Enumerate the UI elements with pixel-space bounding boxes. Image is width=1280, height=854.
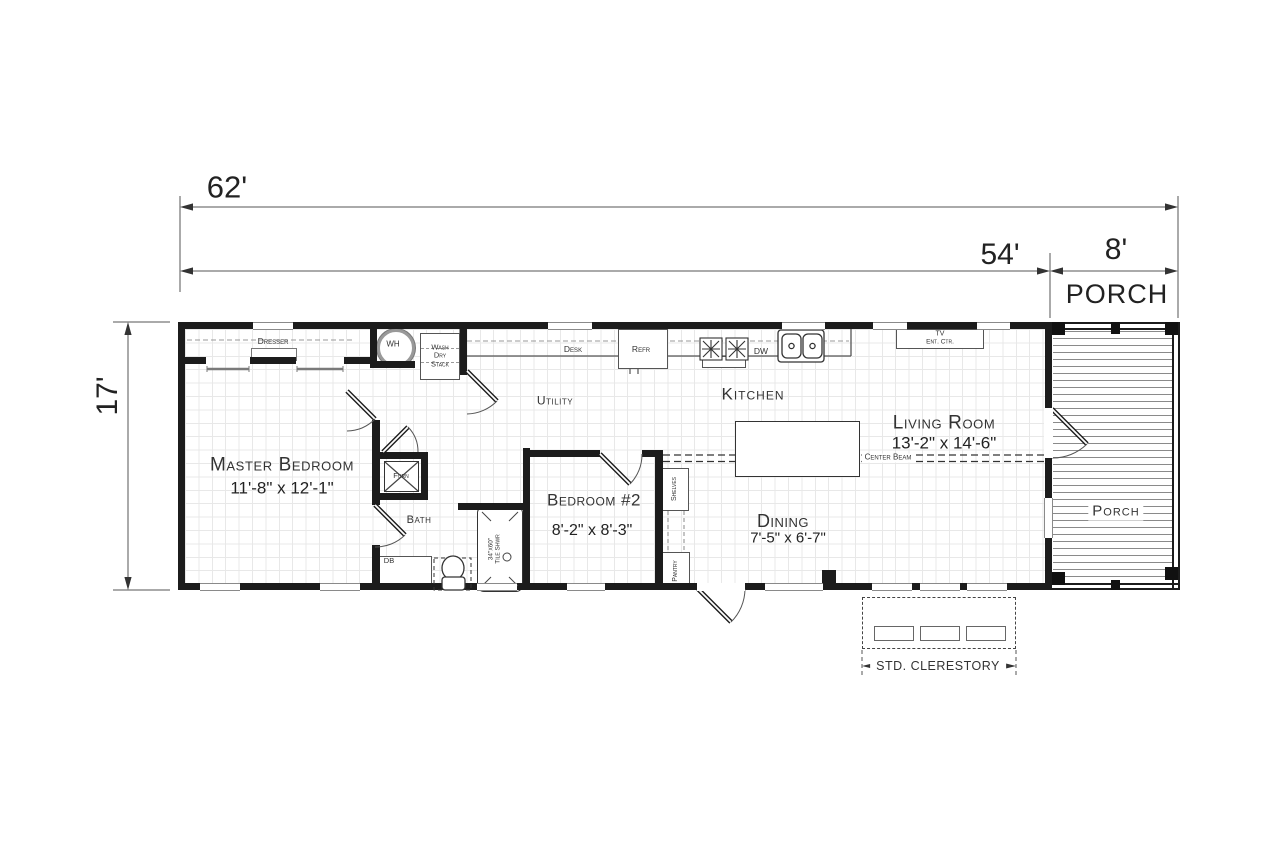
dresser-label: Dresser (258, 337, 289, 347)
shower-size-line: 34"x60" (488, 534, 495, 564)
wash-dry-stack-label: Wash Dry Stack (431, 343, 449, 368)
window-bottom-shower (477, 583, 517, 591)
dim-depth: 17' (91, 376, 125, 415)
clerestory-label: STD. CLERESTORY (870, 659, 1006, 673)
window-bottom-bedroom2 (567, 583, 605, 591)
tile-shower-label: 34"x60" Tile Shwr (488, 534, 503, 564)
dim-total-width: 62' (207, 171, 247, 206)
window-right-living (1044, 498, 1053, 538)
living-room-size: 13'-2" x 14'-6" (892, 433, 997, 452)
window-bottom-dining (765, 583, 823, 591)
living-room-label: Living Room (893, 412, 996, 433)
dim-main-width: 54' (980, 238, 1019, 272)
master-bedroom-label: Master Bedroom (210, 454, 354, 475)
porch-dimension-title: PORCH (1066, 279, 1169, 309)
porch-room-label: Porch (1088, 504, 1143, 521)
door-opening-porch (1044, 408, 1053, 458)
vanity-db-label: DB (384, 557, 394, 565)
window-bottom-living-2 (920, 583, 960, 591)
pantry-label: Pantry (672, 560, 680, 582)
window-bottom-living-3 (967, 583, 1007, 591)
master-bedroom-size: 11'-8" x 12'-1" (230, 478, 333, 497)
bedroom2-size: 8'-2" x 8'-3" (552, 522, 633, 540)
detail-linework-svg (0, 0, 1280, 854)
furnace-label: Furn (393, 472, 408, 480)
center-beam-label: Center Beam (862, 454, 915, 463)
window-top-living-2 (977, 322, 1010, 330)
bedroom2-label: Bedroom #2 (547, 490, 641, 509)
window-bottom-master-2 (320, 583, 360, 591)
window-top-kitchen-sink (782, 322, 825, 330)
window-top-master (253, 322, 293, 330)
utility-label: Utility (537, 394, 573, 407)
kitchen-label: Kitchen (721, 384, 784, 403)
desk-label: Desk (564, 345, 582, 355)
refrigerator-label: Refr (632, 345, 650, 355)
shelves-label: Shelves (671, 477, 679, 501)
window-top-living-1 (873, 322, 907, 330)
tv-line: TV (926, 330, 954, 338)
shower-name-line: Tile Shwr (495, 534, 502, 564)
window-top-utility (548, 322, 592, 330)
dining-size: 7'-5" x 6'-7" (750, 531, 826, 548)
tv-ent-ctr-label: TV Ent. Ctr. (926, 330, 954, 345)
dishwasher-label: DW (754, 347, 768, 357)
door-opening-dining (697, 583, 745, 591)
water-heater-label: WH (386, 341, 399, 350)
window-bottom-living-1 (872, 583, 912, 591)
dim-porch-width: 8' (1105, 233, 1127, 267)
window-bottom-master-1 (200, 583, 240, 591)
bath-label: Bath (407, 514, 432, 526)
stack-line: Stack (431, 360, 449, 368)
floor-plan: 62' 54' 8' PORCH 17' Master Bedroom 11'-… (0, 0, 1280, 854)
ent-ctr-line: Ent. Ctr. (926, 338, 954, 345)
dining-label: Dining (757, 511, 809, 531)
